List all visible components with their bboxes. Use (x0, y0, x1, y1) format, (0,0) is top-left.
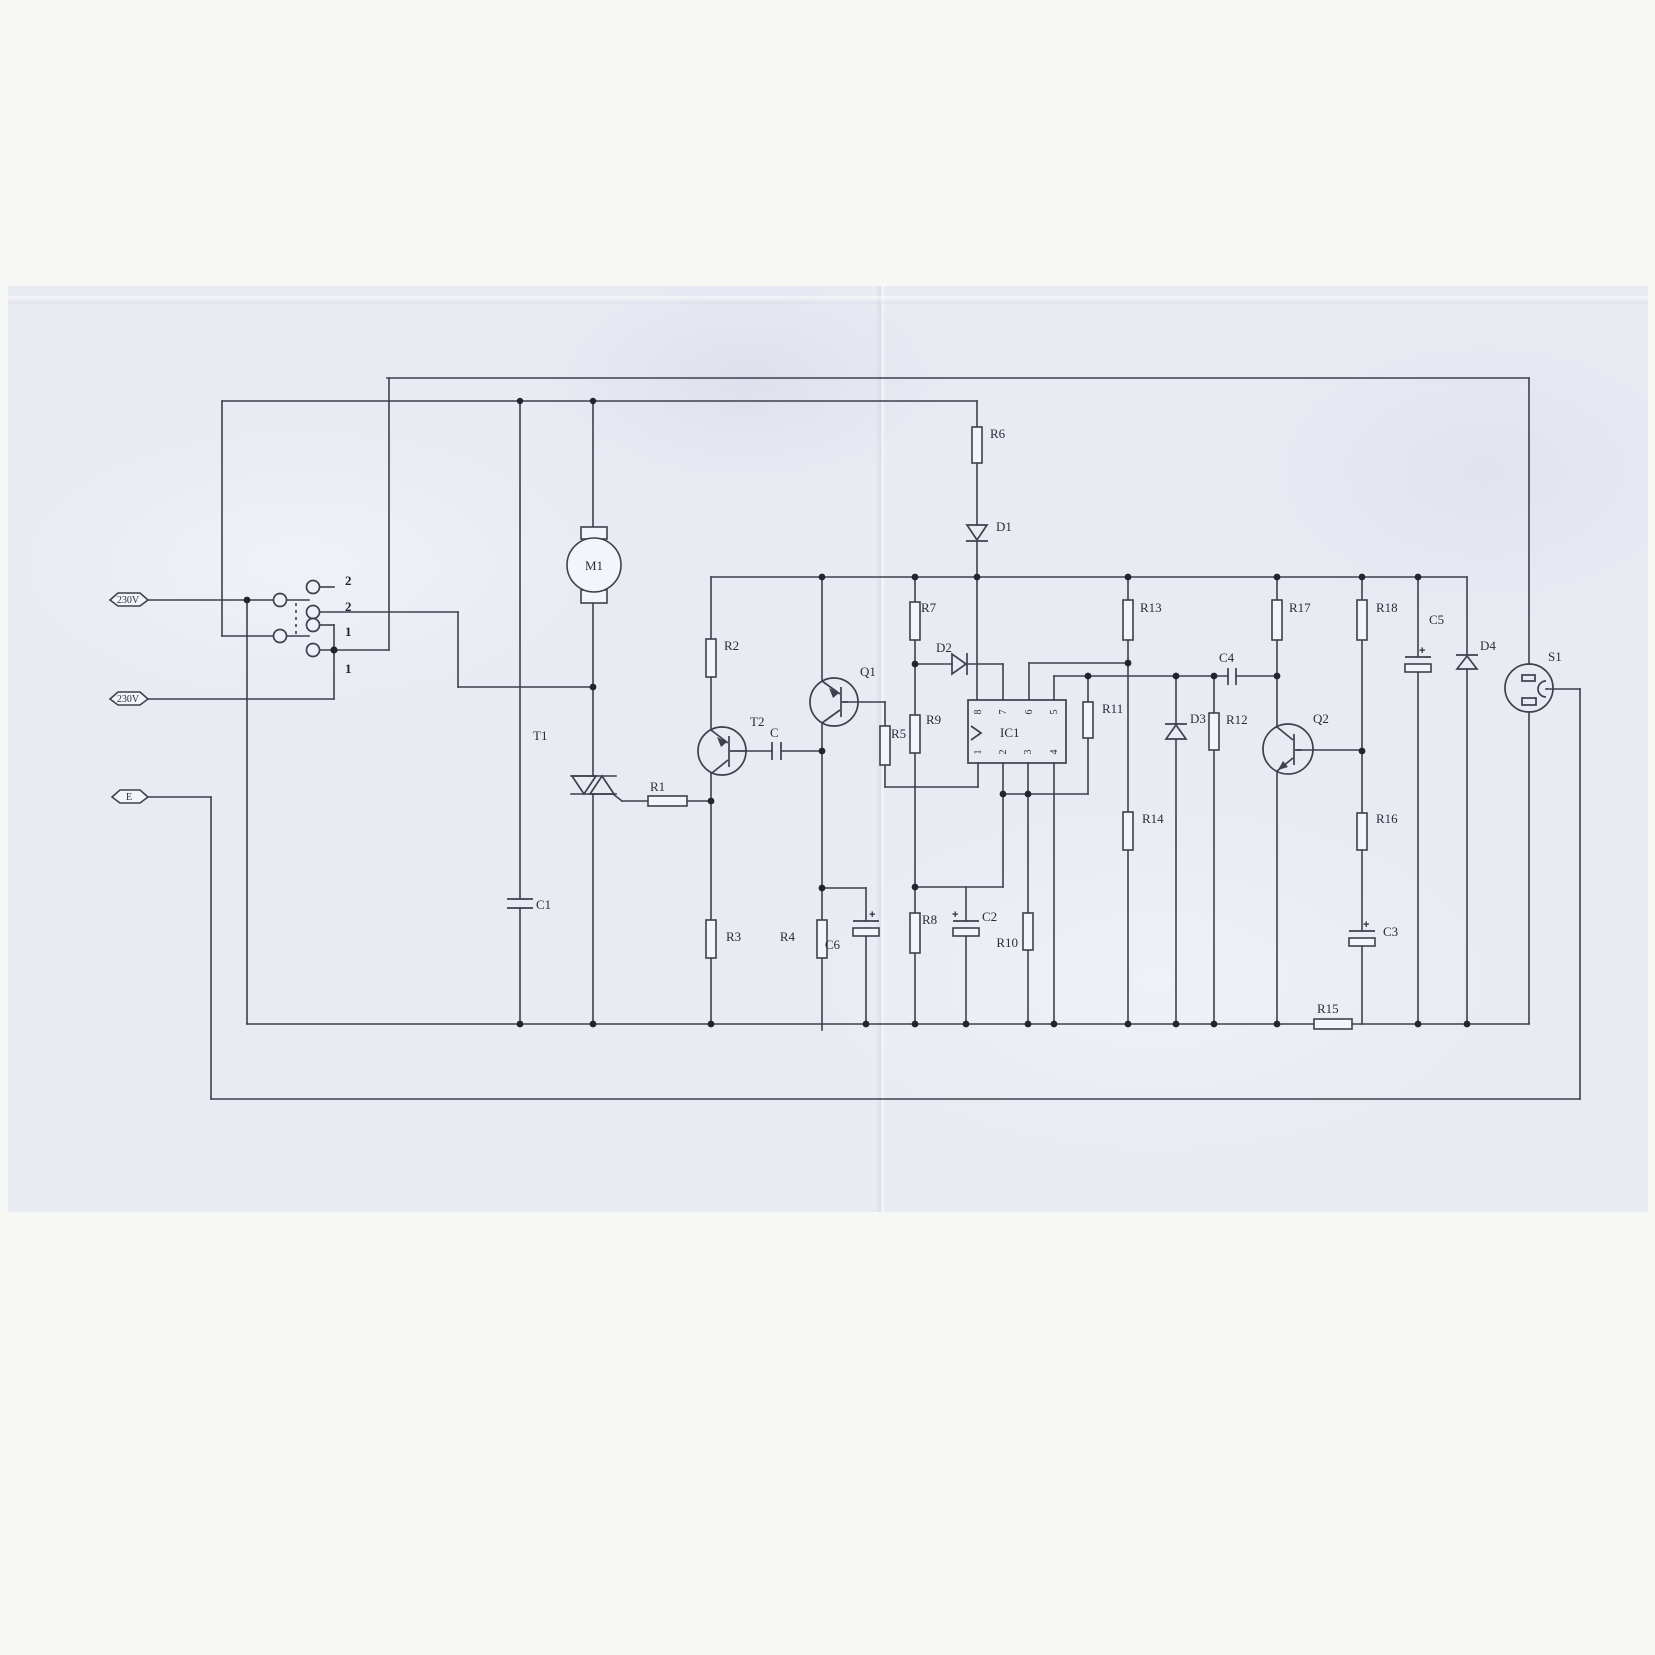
capacitor-c6: + C6 (825, 909, 879, 952)
resistor-r12: R12 (1209, 712, 1248, 750)
transistor-label: Q2 (1313, 711, 1329, 726)
resistor-label: R15 (1317, 1001, 1339, 1016)
circuit-schematic: 230V 230V E 2 2 1 1 M1 (0, 0, 1655, 1655)
ic-pin-number: 8 (973, 710, 984, 715)
selector-switch: 2 2 1 1 (274, 573, 352, 676)
circuit-wires (147, 378, 1580, 1099)
triac-t1: T1 (533, 728, 616, 794)
resistor-r14: R14 (1123, 811, 1164, 850)
polarity-plus: + (952, 909, 958, 921)
transistor-q2: Q2 (1263, 711, 1329, 774)
resistor-label: R11 (1102, 701, 1123, 716)
resistor-r13: R13 (1123, 600, 1162, 640)
capacitor-c5: + C5 (1405, 612, 1444, 672)
capacitor-label: C3 (1383, 924, 1398, 939)
resistor-r15: R15 (1314, 1001, 1352, 1029)
diode-label: D3 (1190, 711, 1206, 726)
socket-s1: S1 (1505, 649, 1562, 712)
motor-label: M1 (585, 558, 603, 573)
transistor-label: Q1 (860, 664, 876, 679)
ic-pin-number: 1 (973, 750, 984, 755)
diode-d1: D1 (966, 519, 1012, 541)
transistor-t2: T2 (698, 714, 764, 775)
resistor-r5: R5 (880, 726, 906, 765)
resistor-label: R17 (1289, 600, 1311, 615)
socket-label: S1 (1548, 649, 1562, 664)
resistor-r16: R16 (1357, 811, 1398, 850)
capacitor-c3: + C3 (1349, 919, 1398, 946)
resistor-label: R12 (1226, 712, 1248, 727)
resistor-label: R10 (996, 935, 1018, 950)
resistor-r3: R3 (706, 920, 741, 958)
transistor-label: T2 (750, 714, 764, 729)
ic-pin-number: 7 (998, 710, 1009, 715)
resistor-r6: R6 (972, 426, 1006, 463)
diode-label: D4 (1480, 638, 1496, 653)
resistor-r1: R1 (648, 779, 687, 806)
resistor-label: R18 (1376, 600, 1398, 615)
polarity-plus: + (1419, 645, 1425, 657)
resistor-label: R2 (724, 638, 739, 653)
ic-pin-number: 3 (1023, 750, 1034, 755)
switch-position-label: 1 (345, 661, 352, 676)
resistor-label: R14 (1142, 811, 1164, 826)
capacitor-label: C5 (1429, 612, 1444, 627)
diode-d2: D2 (936, 640, 967, 675)
resistor-label: R3 (726, 929, 741, 944)
resistor-r10: R10 (996, 913, 1033, 950)
ic-label: IC1 (1000, 725, 1020, 740)
capacitor-label: C1 (536, 897, 551, 912)
resistor-r11: R11 (1083, 701, 1123, 738)
capacitor-c1: C1 (507, 897, 551, 912)
resistor-r18: R18 (1357, 600, 1398, 640)
resistor-label: R7 (921, 600, 937, 615)
ic-pin-number: 6 (1024, 710, 1035, 715)
diode-label: D1 (996, 519, 1012, 534)
triac-label: T1 (533, 728, 547, 743)
terminal-neutral-label: 230V (117, 694, 140, 705)
ic-pin-number: 5 (1049, 710, 1060, 715)
resistor-r4: R4 (780, 920, 827, 958)
capacitor-c4: C4 (1219, 650, 1236, 685)
resistor-r2: R2 (706, 638, 739, 677)
ic-pin-number: 2 (998, 750, 1009, 755)
polarity-plus: + (1363, 919, 1369, 931)
diode-label: D2 (936, 640, 952, 655)
terminal-earth-label: E (126, 792, 132, 803)
resistor-r8: R8 (910, 912, 937, 953)
resistor-r7: R7 (910, 600, 937, 640)
resistor-label: R9 (926, 712, 941, 727)
polarity-plus: + (869, 909, 875, 921)
resistor-label: R8 (922, 912, 937, 927)
resistor-label: R13 (1140, 600, 1162, 615)
resistor-label: R5 (891, 726, 906, 741)
capacitor-label: C4 (1219, 650, 1235, 665)
terminal-earth: E (112, 790, 148, 803)
ic-pin-number: 4 (1049, 750, 1060, 755)
terminal-live-label: 230V (117, 595, 140, 606)
capacitor-label: C6 (825, 937, 841, 952)
terminal-neutral-230v: 230V (110, 692, 148, 705)
resistor-label: R1 (650, 779, 665, 794)
ic1-chip: IC1 8 7 6 5 1 2 3 4 (968, 700, 1066, 763)
resistor-r17: R17 (1272, 600, 1311, 640)
switch-position-label: 1 (345, 624, 352, 639)
capacitor-label: C2 (982, 909, 997, 924)
transistor-q1: Q1 (810, 664, 876, 726)
capacitor-c2: + C2 (952, 909, 997, 936)
capacitor-c: C (770, 725, 781, 760)
resistor-label: R16 (1376, 811, 1398, 826)
motor-m1: M1 (567, 527, 621, 603)
switch-position-label: 2 (345, 599, 352, 614)
terminal-live-230v: 230V (110, 593, 148, 606)
resistor-label: R6 (990, 426, 1006, 441)
diode-d3: D3 (1165, 711, 1206, 739)
switch-position-label: 2 (345, 573, 352, 588)
schematic-page: 230V 230V E 2 2 1 1 M1 (0, 0, 1655, 1655)
diode-d4: D4 (1456, 638, 1496, 669)
capacitor-label: C (770, 725, 779, 740)
resistor-label: R4 (780, 929, 796, 944)
resistor-r9: R9 (910, 712, 941, 753)
